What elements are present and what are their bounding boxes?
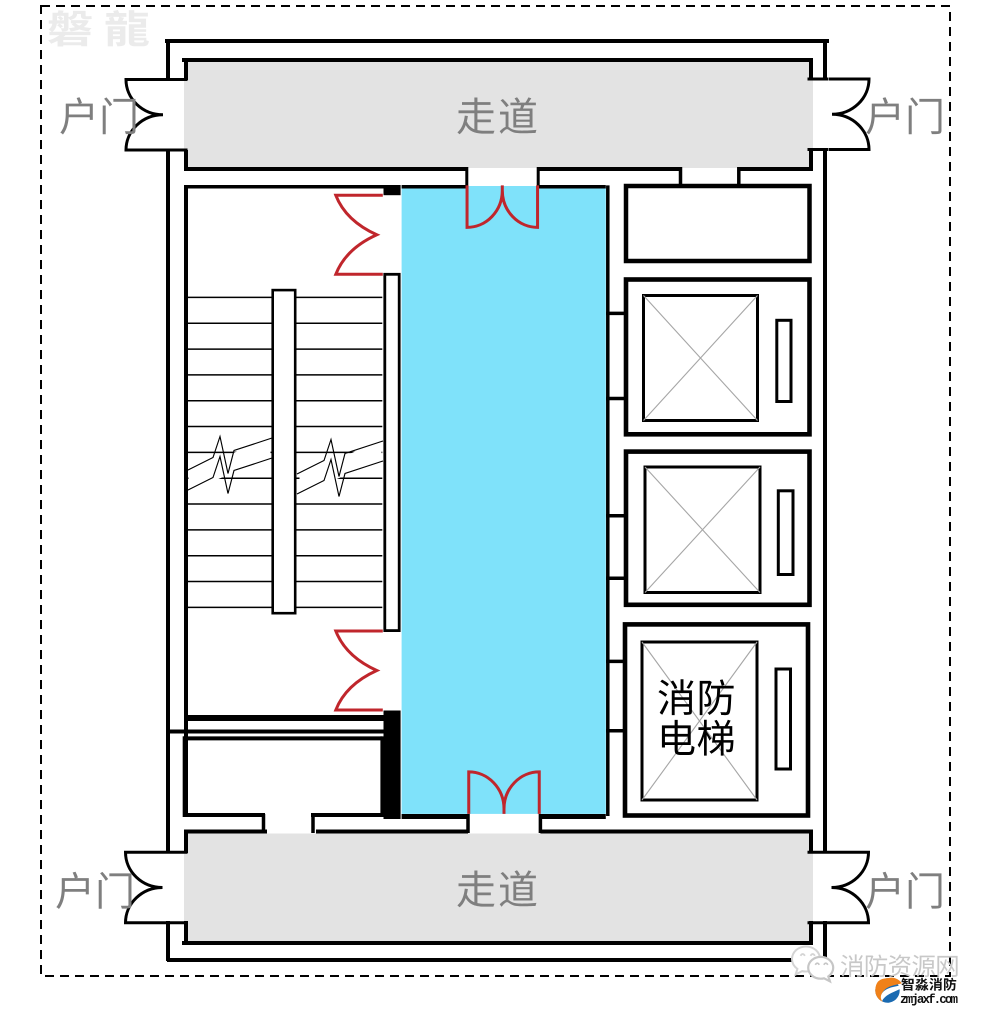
svg-text:zmjaxf.com: zmjaxf.com: [900, 993, 958, 1007]
